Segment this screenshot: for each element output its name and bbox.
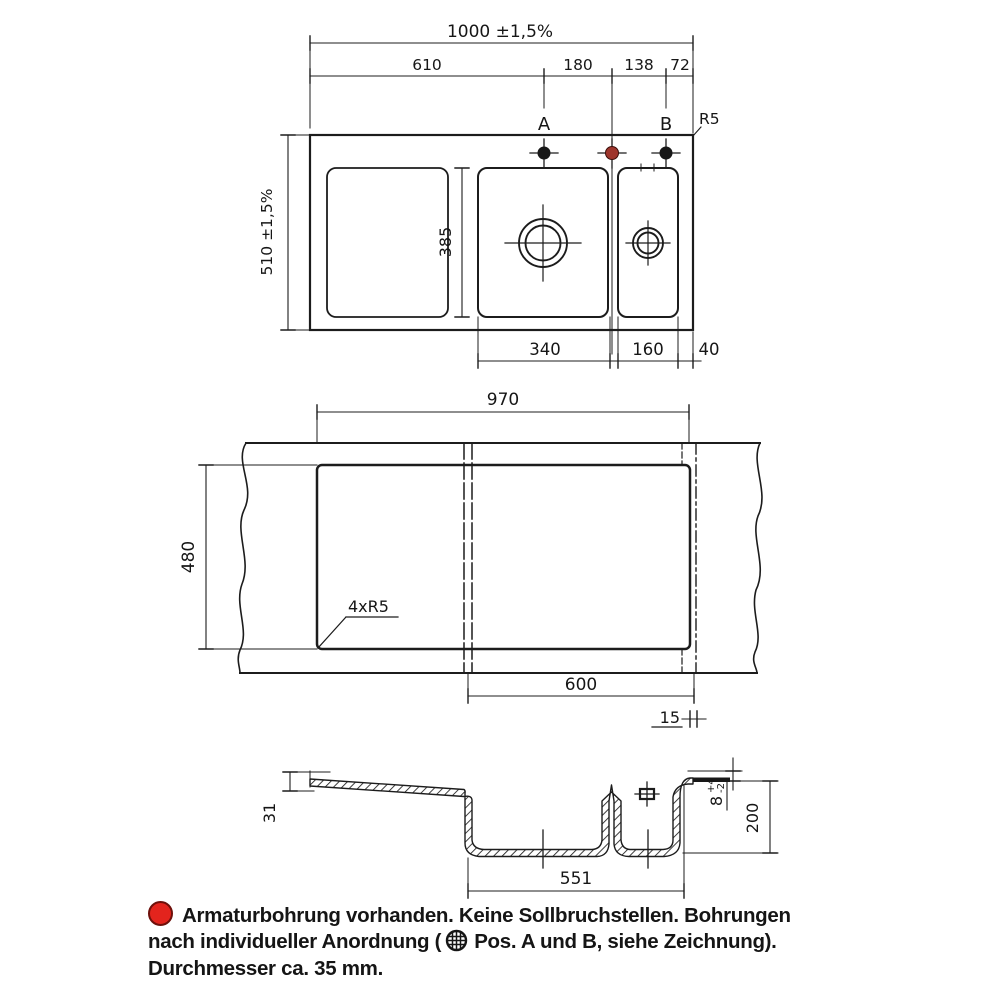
dim-total-depth-label: 510 ±1,5%: [258, 189, 276, 276]
cutout-view: 970 480 4xR5 600 15: [179, 390, 762, 727]
top-view: 1000 ±1,5% 610 180 138 72 A B R5 510 ±1,…: [258, 22, 720, 368]
main-drain-icon: [505, 205, 581, 281]
r5-leader-line: [693, 127, 701, 136]
footer-line2-text-b: Pos. A und B, siehe Zeichnung).: [474, 930, 776, 953]
divider-trace-lines: [464, 443, 472, 673]
cutout-radius-label: 4xR5: [348, 597, 389, 616]
cutout-radius-leader: [318, 617, 398, 648]
dim-8-label: 8: [707, 796, 726, 806]
footer-line1-text: Armaturbohrung vorhanden. Keine Sollbruc…: [182, 904, 791, 927]
dim-200-label: 200: [743, 803, 762, 834]
footer-line3: Durchmesser ca. 35 mm.: [148, 955, 908, 982]
section-view: 31 551 200 8 +4 -2: [260, 758, 778, 898]
faucet-hole-b-icon: [652, 139, 680, 168]
break-line-left: [238, 443, 247, 673]
dim-72-label: 72: [670, 56, 690, 74]
dim-rim-height-group: 8 +4 -2: [706, 778, 727, 810]
dim-160-label: 160: [632, 340, 664, 359]
faucet-hole-red-icon: [148, 901, 173, 926]
top-view-dimension-lines: [288, 43, 701, 361]
small-drain-icon: [626, 221, 670, 265]
dim-551-label: 551: [560, 869, 592, 889]
section-extension-lines: [285, 771, 778, 898]
dim-15-label: 15: [660, 708, 680, 727]
break-line-right: [754, 443, 762, 673]
dim-340-label: 340: [529, 340, 561, 359]
footer-line2-text-a: nach individueller Anordnung (: [148, 930, 441, 953]
top-view-extension-lines: [282, 36, 693, 368]
dim-970-label: 970: [487, 390, 519, 410]
drill-position-icon: [445, 929, 468, 952]
corner-radius-label: R5: [699, 110, 720, 128]
dim-480-label: 480: [179, 541, 199, 573]
footer-line1: Armaturbohrung vorhanden. Keine Sollbruc…: [148, 901, 908, 928]
dim-inner-depth-label: 385: [436, 227, 455, 258]
footer-note: Armaturbohrung vorhanden. Keine Sollbruc…: [148, 901, 908, 982]
dim-138-label: 138: [624, 56, 654, 74]
dim-total-width-label: 1000 ±1,5%: [447, 22, 553, 42]
hole-b-label: B: [660, 114, 672, 135]
overflow-marker-icon: [635, 782, 659, 806]
cutout-dimension-ticks: [199, 405, 697, 727]
dim-8-tol-minus: -2: [716, 783, 727, 793]
dim-600-label: 600: [565, 675, 597, 695]
faucet-hole-optional-icon: [598, 139, 626, 168]
dim-31-label: 31: [260, 803, 279, 823]
footer-line2: nach individueller Anordnung (Pos. A und…: [148, 928, 908, 955]
dim-180-label: 180: [563, 56, 593, 74]
sink-section-body: [310, 778, 693, 857]
dim-40-label: 40: [699, 340, 720, 359]
hole-a-label: A: [538, 114, 551, 135]
sink-technical-drawing: 1000 ±1,5% 610 180 138 72 A B R5 510 ±1,…: [0, 0, 1000, 1000]
section-dimension-ticks: [283, 771, 777, 898]
top-view-dimension-ticks: [281, 36, 693, 368]
cutout-outline: [317, 465, 690, 649]
sink-outline: [310, 135, 693, 330]
faucet-hole-a-icon: [530, 139, 558, 168]
cutout-extension-lines: [200, 406, 694, 702]
drainboard: [327, 168, 448, 317]
drawing-svg: 1000 ±1,5% 610 180 138 72 A B R5 510 ±1,…: [0, 0, 1000, 1000]
dim-610-label: 610: [412, 56, 442, 74]
footer-line3-text: Durchmesser ca. 35 mm.: [148, 957, 383, 980]
